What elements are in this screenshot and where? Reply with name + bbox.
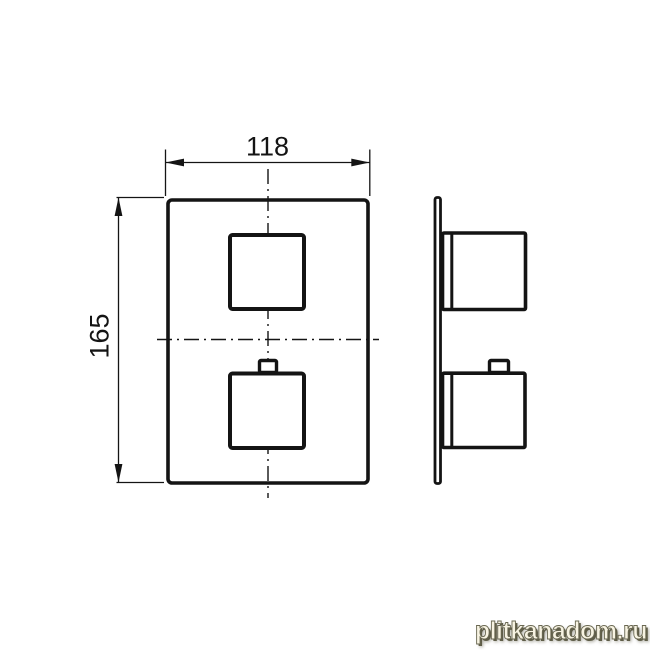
- technical-drawing-canvas: 118 165 plitkanadom.ru: [0, 0, 650, 650]
- arrowhead-left-icon: [166, 159, 185, 167]
- watermark-text: plitkanadom.ru: [475, 617, 647, 646]
- arrowhead-right-icon: [351, 159, 370, 167]
- upper-knob-side: [443, 233, 526, 310]
- arrowhead-down-icon: [115, 464, 123, 483]
- height-dimension-label: 165: [85, 313, 115, 358]
- wall-plate-profile: [435, 198, 441, 484]
- side-view: [435, 198, 526, 484]
- dimension-width: 118: [166, 132, 370, 197]
- upper-knob-front: [230, 235, 304, 309]
- drawing-svg: 118 165: [0, 0, 650, 650]
- lower-knob-side: [443, 373, 526, 447]
- lower-knob-tab-front: [260, 361, 277, 373]
- front-view: [157, 169, 379, 498]
- arrowhead-up-icon: [115, 198, 123, 217]
- lower-knob-tab-side: [490, 361, 509, 373]
- dimension-height: 165: [85, 198, 165, 483]
- lower-knob-front: [230, 374, 304, 449]
- width-dimension-label: 118: [246, 132, 289, 162]
